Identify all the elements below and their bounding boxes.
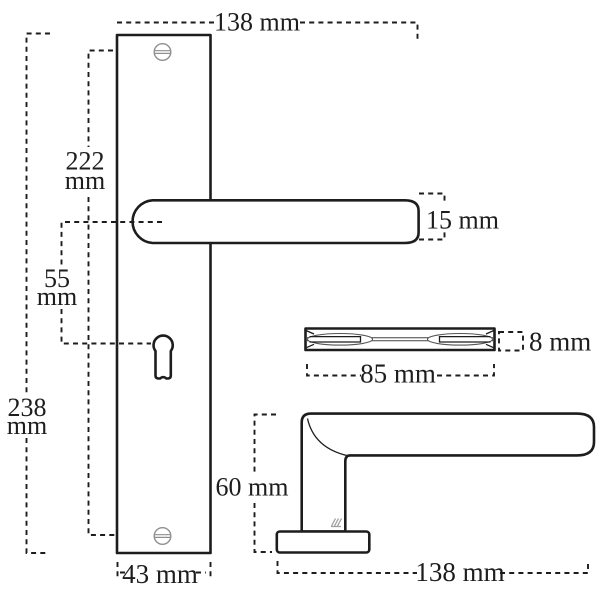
label-handle-length: 138 mm [415,557,504,587]
label-spindle-thickness: 8 mm [529,327,591,357]
dim-line-spindle-thickness [499,332,523,351]
label-lever-thickness: 15 mm [426,206,499,235]
label-plate-height-unit: mm [7,411,47,440]
label-handle-to-keyhole-unit: mm [37,282,77,311]
technical-drawing-page: 138 mm 222 mm 55 mm 238 mm 15 mm 8 mm 85… [0,0,600,600]
spindle-left-spring-slot [308,334,373,346]
top-screw-head [154,44,171,61]
bottom-screw-icon [154,528,171,545]
label-plate-width: 43 mm [122,559,198,589]
top-screw-icon [154,44,171,61]
label-spindle-length: 85 mm [360,359,436,389]
spindle-right-spring-slot [428,334,493,346]
dim-line-screw-distance [89,51,118,536]
dimension-labels: 138 mm 222 mm 55 mm 238 mm 15 mm 8 mm 85… [7,8,591,590]
rose-outline [277,532,370,553]
side-view [277,414,594,553]
lever-front-outline [133,200,419,243]
label-plate-top-width: 138 mm [214,8,300,37]
label-handle-height: 60 mm [216,473,289,502]
keyhole-icon [154,336,173,379]
spindle-view [306,329,495,351]
door-handle-technical-drawing: 138 mm 222 mm 55 mm 238 mm 15 mm 8 mm 85… [0,0,600,600]
lever-side-outline [302,414,594,532]
bottom-screw-head [154,528,171,545]
backplate-outline [117,35,211,553]
label-screw-distance-unit: mm [65,166,105,195]
